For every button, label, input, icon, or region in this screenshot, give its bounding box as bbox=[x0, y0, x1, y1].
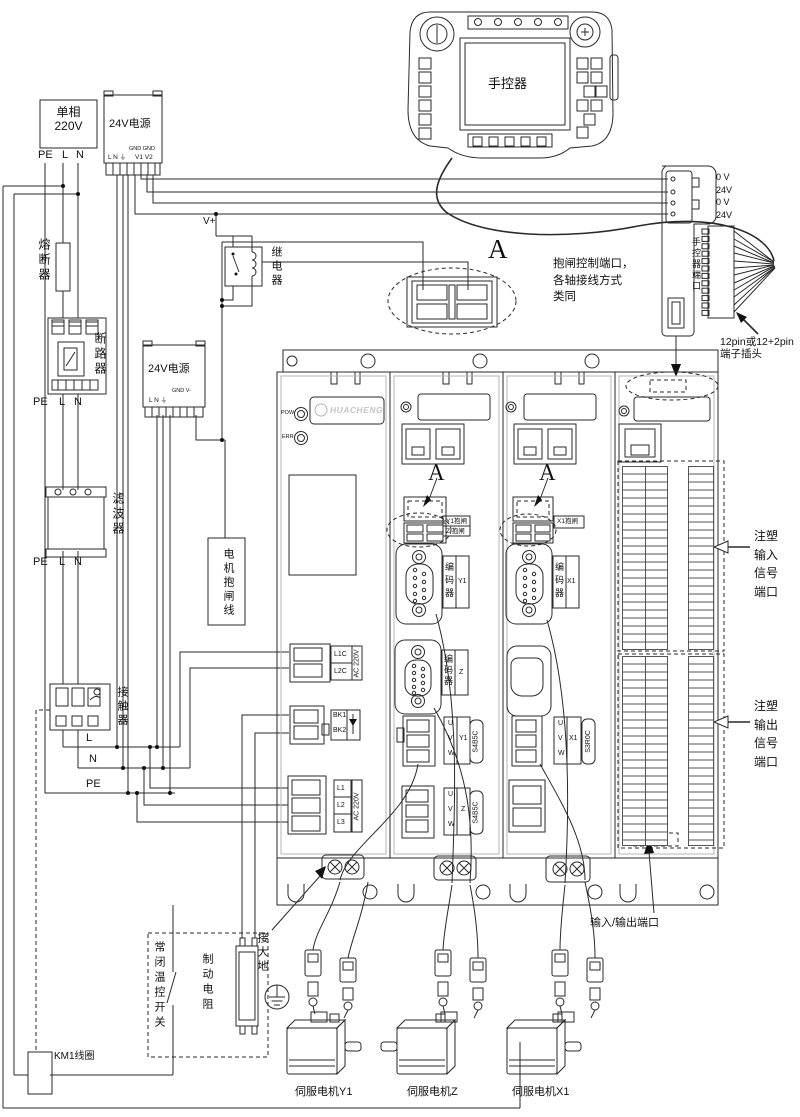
pendant-title: 手控器 bbox=[488, 77, 527, 92]
servo-motors bbox=[287, 1012, 581, 1074]
pendant-device bbox=[408, 12, 774, 261]
ac220v-label-1: AC 220V bbox=[349, 646, 365, 680]
callout-arrows bbox=[272, 541, 750, 930]
pin-label-24v-1: 24V bbox=[716, 185, 732, 195]
mains-l-label: L bbox=[62, 149, 68, 162]
part-s4b5c-2: S4B5C bbox=[467, 791, 486, 834]
io-input-terminal-strip-right[interactable] bbox=[688, 466, 714, 650]
psu1-box bbox=[104, 91, 162, 175]
psu2-gnd-row: GND V- bbox=[172, 388, 191, 394]
mains-source-label: 单相220V bbox=[40, 106, 97, 134]
psu1-in-row: L N ⏚ bbox=[108, 154, 126, 161]
junction-dots bbox=[61, 184, 224, 795]
psu2-title: 24V电源 bbox=[148, 363, 190, 376]
io-output-terminal-strip-right[interactable] bbox=[688, 656, 714, 846]
bus-l-label: L bbox=[86, 732, 92, 745]
io-input-terminal-strip-left[interactable] bbox=[622, 466, 668, 650]
psu1-gnd-row: GND GND bbox=[129, 146, 155, 152]
pin-label-0v-2: 0 V bbox=[716, 197, 730, 207]
psu2-in-row: L N ⏚ bbox=[149, 397, 167, 404]
uvw-z-axis: Z bbox=[461, 806, 465, 814]
pow-led-label: POW bbox=[281, 410, 294, 416]
encoder-y1-axis: Y1 bbox=[458, 578, 467, 586]
io-output-terminal-strip-left[interactable] bbox=[622, 656, 668, 846]
uvw-y1-u: U bbox=[448, 720, 453, 728]
encoder-x1-axis: X1 bbox=[567, 578, 576, 586]
filter-label: 滤波器 bbox=[110, 492, 127, 537]
encoder-x1-label: 编码器 bbox=[553, 562, 566, 601]
filter-symbol bbox=[46, 487, 106, 557]
uvw-x1-v: V bbox=[558, 735, 563, 743]
uvw-x1-u: U bbox=[558, 720, 563, 728]
uvw-x1-axis: X1 bbox=[569, 735, 578, 743]
io-port-label: 输入/输出端口 bbox=[590, 917, 659, 930]
mains-n-label: N bbox=[76, 149, 84, 162]
breaker-pe-label: PE bbox=[33, 396, 48, 409]
uvw-y1-v: V bbox=[448, 735, 453, 743]
l2c-label: L2C bbox=[334, 668, 347, 676]
km1-coil-label: KM1线圈 bbox=[54, 1051, 95, 1063]
x1-brake-label: X1抱闸 bbox=[557, 518, 578, 525]
brand-logo: HUACHENG bbox=[330, 406, 383, 416]
bus-pe-label: PE bbox=[86, 778, 101, 791]
detail-a-letter: A bbox=[488, 234, 508, 265]
psu2-box bbox=[143, 341, 205, 417]
injection-output-label: 注塑输出 信号端口 bbox=[754, 697, 778, 771]
filter-n-label: N bbox=[74, 556, 82, 569]
detail-a-letter-m2: A bbox=[428, 460, 445, 486]
motor-z-label: 伺服电机Z bbox=[407, 1086, 458, 1099]
l3-label: L3 bbox=[337, 819, 345, 827]
earth-label: 接大地 bbox=[254, 932, 270, 974]
uvw-z-u: U bbox=[448, 791, 453, 799]
encoder-y1-label: 编码器 bbox=[443, 562, 456, 601]
y1-brake-label: Y1抱闸 bbox=[446, 518, 467, 525]
bk2-label: BK2 bbox=[333, 727, 346, 735]
l2-label: L2 bbox=[337, 802, 345, 810]
err-led-label: ERR bbox=[282, 434, 294, 440]
mains-pe-label: PE bbox=[38, 149, 53, 162]
l1c-label: L1C bbox=[334, 651, 347, 659]
psu1-out-row: V1 V2 bbox=[135, 154, 153, 161]
bk1-label: BK1 bbox=[333, 712, 346, 720]
psu1-title: 24V电源 bbox=[109, 118, 151, 131]
relay-label: 继电器 bbox=[268, 246, 284, 288]
encoder-z-label: 编码器 bbox=[442, 654, 455, 687]
pin-label-24v-2: 24V bbox=[716, 210, 732, 220]
breaker-l-label: L bbox=[59, 396, 65, 409]
pin-label-0v-1: 0 V bbox=[716, 172, 730, 182]
module1-psu-unit bbox=[288, 397, 384, 879]
fuse-label: 熔断器 bbox=[36, 238, 53, 283]
uvw-z-v: V bbox=[448, 806, 453, 814]
pendant-port-label: 手控器端口 bbox=[690, 237, 703, 292]
uvw-y1-w: W bbox=[448, 750, 455, 758]
detail-a-letter-m3: A bbox=[539, 460, 556, 486]
brake-resistor-label: 制动电阻 bbox=[199, 953, 215, 1013]
contactor-label: 接触器 bbox=[114, 686, 130, 728]
breaker-label: 断路器 bbox=[92, 332, 109, 377]
ac220v-label-2: AC 220V bbox=[349, 789, 365, 823]
part-s3r0c: S3R0C bbox=[579, 719, 598, 764]
wiring-diagram: 单相220V PE L N 24V电源 GND GND L N ⏚ V1 V2 … bbox=[0, 0, 800, 1117]
brake-line-label: 电机抱闸线 bbox=[220, 548, 236, 618]
relay-symbol bbox=[225, 247, 262, 286]
v-plus-label: V+ bbox=[203, 216, 216, 228]
filter-pe-label: PE bbox=[33, 556, 48, 569]
fuse-symbol bbox=[56, 243, 70, 291]
plug-note: 12pin或12+2pin端子插头 bbox=[720, 336, 794, 360]
contactor-symbol bbox=[50, 684, 110, 730]
bus-n-label: N bbox=[89, 753, 97, 766]
encoder-z-axis: Z bbox=[459, 669, 463, 677]
breaker-n-label: N bbox=[74, 396, 82, 409]
filter-l-label: L bbox=[59, 556, 65, 569]
motor-x1-label: 伺服电机X1 bbox=[512, 1086, 569, 1099]
motor-connectors bbox=[305, 950, 603, 1018]
part-s4b5c-1: S4B5C bbox=[467, 720, 486, 763]
uvw-x1-w: W bbox=[558, 750, 565, 758]
temp-switch-label: 常闭温控开关 bbox=[151, 941, 167, 1031]
injection-input-label: 注塑输入 信号端口 bbox=[754, 527, 778, 601]
brake-note: 抱闸控制端口，各轴接线方式类同 bbox=[553, 256, 634, 306]
z-brake-label: Z 抱闸 bbox=[446, 528, 465, 535]
l1-label: L1 bbox=[337, 785, 345, 793]
uvw-z-w: W bbox=[448, 821, 455, 829]
detail-a-connector bbox=[388, 268, 516, 334]
diagram-linework bbox=[0, 0, 800, 1117]
motor-y1-label: 伺服电机Y1 bbox=[295, 1086, 352, 1099]
